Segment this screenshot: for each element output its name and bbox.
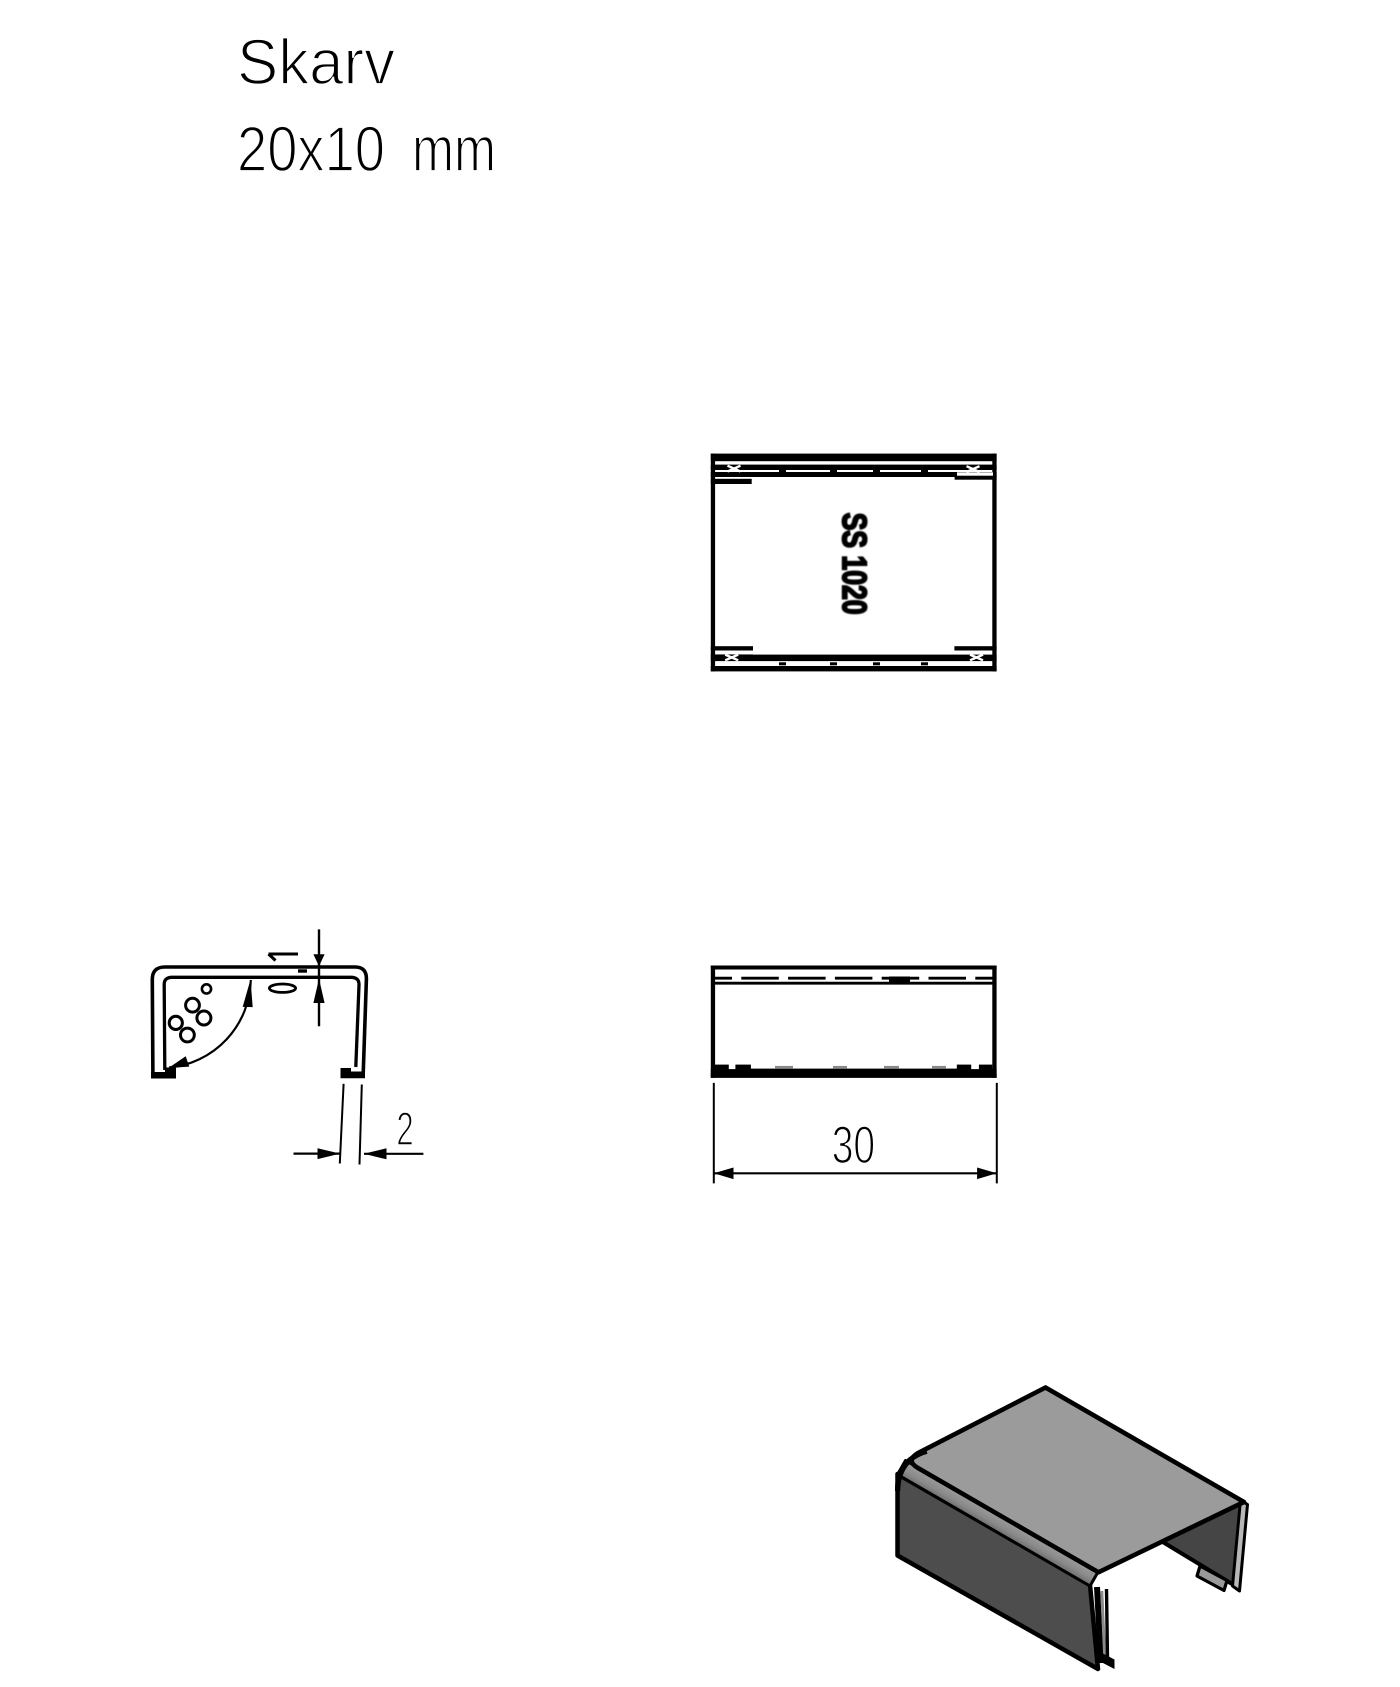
svg-text:Skarv: Skarv xyxy=(237,26,395,98)
svg-text:SS 1020: SS 1020 xyxy=(835,513,873,615)
svg-text:30: 30 xyxy=(832,1116,875,1175)
svg-text:mm: mm xyxy=(412,113,496,185)
svg-text:20x10: 20x10 xyxy=(237,113,385,185)
svg-text:2: 2 xyxy=(396,1103,413,1156)
